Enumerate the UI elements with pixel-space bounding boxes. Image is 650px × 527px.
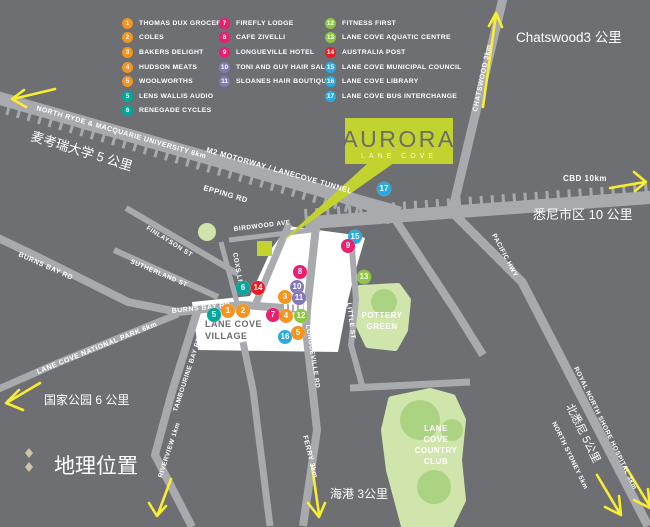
road-west-parallel [243, 342, 270, 526]
small-park-blob [198, 223, 216, 241]
legend-label: RENEGADE CYCLES [139, 107, 211, 114]
legend-item: 11SLOANES HAIR BOUTIQUE [219, 74, 336, 89]
legend-item: 3BAKERS DELIGHT [122, 45, 222, 60]
label-epping: EPPING RD [202, 183, 249, 204]
road-connector [350, 382, 470, 388]
legend-number-badge: 1 [122, 18, 133, 29]
arrow-north-sydney-1 [597, 475, 621, 515]
club-trees-2 [417, 470, 451, 504]
legend-number-badge: 4 [122, 62, 133, 73]
legend-label: HUDSON MEATS [139, 64, 197, 71]
label-cn-harbour: 海港 3公里 [330, 486, 388, 501]
legend-col-3: 12FITNESS FIRST13LANE COVE AQUATIC CENTR… [325, 16, 462, 104]
road-tambourine [155, 312, 197, 527]
legend-label: THOMAS DUX GROCER [139, 20, 222, 27]
legend-label: FIREFLY LODGE [236, 20, 294, 27]
legend-item: 1THOMAS DUX GROCER [122, 16, 222, 31]
aurora-site-square [257, 241, 272, 256]
label-pottery-line1: POTTERY [362, 311, 403, 320]
label-sutherland: SUTHERLAND ST [129, 258, 188, 288]
legend-label: SLOANES HAIR BOUTIQUE [236, 78, 331, 85]
label-club-line2: COVE [424, 435, 449, 444]
legend-label: FITNESS FIRST [342, 20, 396, 27]
legend-item: 16LANE COVE LIBRARY [325, 74, 462, 89]
arrow-riverview [149, 479, 171, 516]
road-m2-hatching [0, 105, 397, 223]
legend-item: 6RENEGADE CYCLES [122, 104, 222, 119]
legend-label: AUSTRALIA POST [342, 49, 406, 56]
legend-item: 2COLES [122, 31, 222, 46]
legend-number-badge: 14 [325, 47, 336, 58]
legend-label: BAKERS DELIGHT [139, 49, 204, 56]
legend-number-badge: 7 [219, 18, 230, 29]
label-club-line4: CLUB [424, 457, 448, 466]
label-village-line2: VILLAGE [205, 331, 248, 341]
label-m2: M2 MOTORWAY / LANECOVE TUNNEL [205, 145, 353, 195]
legend-label: WOOLWORTHS [139, 78, 193, 85]
legend-label: LANE COVE MUNICIPAL COUNCIL [342, 64, 462, 71]
legend-number-badge: 3 [122, 47, 133, 58]
legend-number-badge: 5 [122, 76, 133, 87]
legend-number-badge: 6 [122, 105, 133, 116]
legend-number-badge: 8 [219, 32, 230, 43]
legend-number-badge: 12 [325, 18, 336, 29]
road-east-diagonal [393, 216, 483, 355]
geo-location-title: 地理位置 [54, 455, 138, 478]
legend-label: LONGUEVILLE HOTEL [236, 49, 314, 56]
club-trees-1 [400, 400, 440, 440]
legend-item: 10TONI AND GUY HAIR SALON [219, 60, 336, 75]
label-club-line3: COUNTRY [415, 446, 458, 455]
legend-label: LANE COVE BUS INTERCHANGE [342, 93, 457, 100]
arrow-cbd [610, 172, 646, 191]
legend-number-badge: 16 [325, 76, 336, 87]
legend-label: CAFE ZIVELLI [236, 34, 285, 41]
label-cn-national-park: 国家公园 6 公里 [44, 392, 129, 407]
label-club-line1: LANE [424, 424, 448, 433]
label-cbd: CBD 10km [563, 174, 607, 183]
legend-col-1: 1THOMAS DUX GROCER2COLES3BAKERS DELIGHT4… [122, 16, 222, 118]
aurora-logo-subtitle: LANE COVE [361, 153, 437, 160]
geo-title-diamonds [25, 448, 33, 472]
legend-number-badge: 13 [325, 32, 336, 43]
legend-label: TONI AND GUY HAIR SALON [236, 64, 336, 71]
legend-item: 5LENS WALLIS AUDIO [122, 89, 222, 104]
legend-label: COLES [139, 34, 164, 41]
legend-number-badge: 5 [122, 91, 133, 102]
label-pottery-line2: GREEN [367, 322, 398, 331]
legend-item: 17LANE COVE BUS INTERCHANGE [325, 89, 462, 104]
label-national-park: LANE COVE NATIONAL PARK 6km [36, 321, 158, 376]
label-cn-sydney-cbd: 悉尼市区 10 公里 [533, 207, 633, 222]
aurora-logo-title: AURORA [342, 126, 455, 152]
legend-number-badge: 2 [122, 32, 133, 43]
legend-item: 9LONGUEVILLE HOTEL [219, 45, 336, 60]
legend-item: 5WOOLWORTHS [122, 74, 222, 89]
legend-label: LANE COVE AQUATIC CENTRE [342, 34, 451, 41]
legend-number-badge: 10 [219, 62, 230, 73]
road-pacific-south [452, 212, 648, 526]
legend-number-badge: 17 [325, 91, 336, 102]
legend-number-badge: 11 [219, 76, 230, 87]
legend-item: 12FITNESS FIRST [325, 16, 462, 31]
legend-item: 14AUSTRALIA POST [325, 45, 462, 60]
label-village-line1: LANE COVE [205, 319, 262, 329]
legend-item: 13LANE COVE AQUATIC CENTRE [325, 31, 462, 46]
brochure-map-page: { "colors": { "background": "#6d6f72", "… [0, 0, 650, 527]
legend-item: 15LANE COVE MUNICIPAL COUNCIL [325, 60, 462, 75]
legend-item: 7FIREFLY LODGE [219, 16, 336, 31]
legend-item: 4HUDSON MEATS [122, 60, 222, 75]
legend-item: 8CAFE ZIVELLI [219, 31, 336, 46]
label-cn-chatswood: Chatswood3 公里 [516, 30, 622, 45]
legend-label: LANE COVE LIBRARY [342, 78, 419, 85]
legend-number-badge: 9 [219, 47, 230, 58]
legend-col-2: 7FIREFLY LODGE8CAFE ZIVELLI9LONGUEVILLE … [219, 16, 336, 89]
legend-number-badge: 15 [325, 62, 336, 73]
legend-label: LENS WALLIS AUDIO [139, 93, 213, 100]
